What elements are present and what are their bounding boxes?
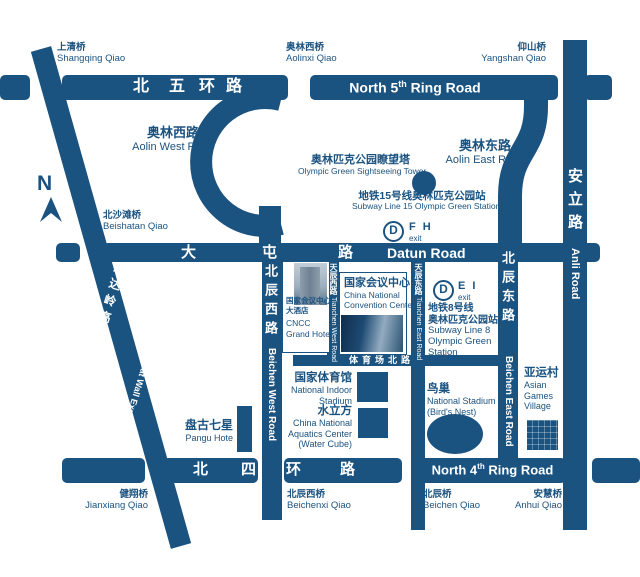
tiyuchang-road-label: 体育场北路	[349, 356, 414, 365]
datun-char-3: 路	[338, 245, 353, 260]
ring5-en-pre: North 5	[349, 80, 398, 96]
birds-nest-zh: 鸟巢	[427, 383, 496, 396]
tianchen-east-label-zh: 天辰东路	[414, 263, 422, 295]
asian-games-en1: Asian	[524, 380, 559, 390]
bridge-anhui: 安慧桥 Anhui Qiao	[498, 490, 562, 512]
ring4-char-2: 四	[241, 462, 256, 477]
asian-games-en2: Games	[524, 391, 559, 401]
anhui-en: Anhui Qiao	[498, 501, 562, 512]
line8-exit-text: exit	[458, 293, 477, 302]
cncc-photo	[341, 315, 403, 352]
ring4-char-4: 路	[340, 462, 355, 477]
beichen-east-label-zh: 北辰东路	[501, 251, 514, 327]
ring4-char-3: 环	[286, 462, 301, 477]
datun-char-2: 屯	[262, 245, 277, 260]
bridge-beichenxi: 北辰西桥 Beichenxi Qiao	[287, 490, 351, 512]
ring4-en-sup: th	[477, 462, 485, 471]
water-cube-marker	[358, 408, 388, 438]
anli-road-label-en: Anli Road	[569, 248, 580, 299]
line8-exit-label: E I exit	[458, 280, 477, 302]
line15-exit-text: exit	[409, 234, 433, 243]
ring5-char-3: 环	[199, 79, 215, 95]
line8-exit-code: E I	[458, 280, 477, 293]
aolinxi-en: Aolinxi Qiao	[286, 54, 337, 65]
cncc-hotel-en1: CNCC	[286, 319, 311, 329]
subway-logo-letter: D	[439, 282, 448, 296]
tower-zh: 奥林匹克公园瞭望塔	[298, 154, 423, 167]
aolin-east-en: Aolin East Road	[430, 154, 540, 167]
asian-games-zh: 亚运村	[524, 367, 559, 380]
indoor-stadium-label: 国家体育馆 National Indoor Stadium	[286, 372, 352, 406]
jianxiang-en: Jianxiang Qiao	[80, 501, 148, 512]
ring4-en-pre: North 4	[432, 462, 478, 477]
water-cube-zh: 水立方	[286, 405, 352, 418]
cncc-en2: Convention Center	[344, 301, 415, 311]
tianchen-east-label-en: Tianchen East Road	[415, 297, 422, 360]
birds-nest-en1: National Stadium	[427, 396, 496, 406]
beichen-en: Beichen Qiao	[423, 501, 480, 512]
cncc-hotel-zh2: 大酒店	[286, 307, 309, 316]
aolin-east-label: 奥林东路 Aolin East Road	[430, 139, 540, 167]
water-cube-en1: China National	[286, 418, 352, 428]
cncc-box: 国家会议中心 China National Convention Center	[339, 272, 407, 355]
datun-road-stub-left	[56, 243, 80, 262]
datun-road-label-en: Datun Road	[387, 246, 466, 260]
ring5-en-sup: th	[398, 79, 407, 89]
datun-char-1: 大	[181, 245, 196, 260]
birds-nest-marker	[427, 414, 483, 454]
aolin-west-connector-road	[259, 206, 281, 248]
ring5-char-2: 五	[169, 79, 185, 95]
indoor-stadium-marker	[357, 372, 388, 402]
ring4-road-stub-left	[62, 458, 145, 483]
ring4-road-label-en: North 4th Ring Road	[419, 463, 566, 476]
pangu-marker	[237, 406, 252, 452]
ring5-en-post: Ring Road	[407, 80, 481, 96]
line15-station-label: 地铁15号线奥林匹克公园站 Subway Line 15 Olympic Gre…	[352, 190, 492, 212]
line15-en: Subway Line 15 Olympic Green Station	[352, 202, 492, 212]
bridge-beichen: 北辰桥 Beichen Qiao	[423, 490, 480, 512]
ring4-en-post: Ring Road	[485, 462, 554, 477]
birds-nest-label: 鸟巢 National Stadium (Bird's Nest)	[427, 383, 496, 417]
cncc-hotel-en2: Grand Hotel	[286, 330, 332, 340]
cncc-zh: 国家会议中心	[344, 277, 410, 290]
bridge-aolinxi: 奥林西桥 Aolinxi Qiao	[286, 43, 337, 65]
bridge-yangshan: 仰山桥 Yangshan Qiao	[480, 43, 546, 65]
tower-en: Olympic Green Sightseeing Tower	[298, 167, 423, 177]
subway-logo-letter: D	[389, 223, 398, 237]
bridge-shangqing: 上清桥 Shangqing Qiao	[57, 43, 125, 65]
ring5-road-label-en: North 5th Ring Road	[310, 80, 520, 95]
beichen-west-label-en: Beichen West Road	[266, 348, 276, 441]
line8-zh-line: 地铁8号线	[428, 303, 498, 315]
north-arrow-icon	[40, 197, 62, 222]
anli-road-label-zh: 安立路	[567, 168, 582, 237]
tianchen-west-label-zh: 天辰西路	[329, 263, 337, 295]
ring5-char-1: 北	[133, 79, 149, 95]
water-cube-en3: (Water Cube)	[286, 439, 352, 449]
ring5-road-stub-left	[0, 75, 30, 100]
line15-exit-label: F H exit	[409, 221, 433, 243]
ring4-char-1: 北	[193, 462, 208, 477]
cncc-hotel-zh1: 国家会议中心	[286, 297, 331, 306]
ring5-char-4: 路	[226, 79, 242, 95]
beichen-west-label-zh: 北辰西路	[264, 264, 277, 340]
bridge-jianxiang: 健翔桥 Jianxiang Qiao	[80, 490, 148, 512]
shangqing-en: Shangqing Qiao	[57, 54, 125, 65]
yangshan-en: Yangshan Qiao	[480, 54, 546, 65]
pangu-en: Pangu Hote	[168, 433, 233, 443]
transit-map: 北 五 环 路 North 5th Ring Road 大 屯 路 Datun …	[0, 0, 640, 577]
beishatan-en: Beishatan Qiao	[103, 222, 168, 233]
tower-label: 奥林匹克公园瞭望塔 Olympic Green Sightseeing Towe…	[298, 154, 423, 176]
line8-en3: Station	[428, 348, 498, 359]
beichen-east-label-en: Beichen East Road	[503, 356, 513, 447]
asian-games-marker	[527, 420, 558, 450]
subway-logo-icon: D	[433, 280, 454, 301]
indoor-stadium-en1: National Indoor	[286, 385, 352, 395]
aolin-west-zh: 奥林西路	[113, 126, 233, 141]
beichenxi-en: Beichenxi Qiao	[287, 501, 351, 512]
aolin-west-label: 奥林西路 Aolin West Road	[113, 126, 233, 154]
line15-exit-code: F H	[409, 221, 433, 234]
water-cube-en2: Aquatics Center	[286, 429, 352, 439]
bridge-beishatan: 北沙滩桥 Beishatan Qiao	[103, 211, 168, 233]
asian-games-label: 亚运村 Asian Games Village	[524, 367, 559, 411]
pangu-label: 盘古七星 Pangu Hote	[168, 419, 233, 443]
subway-logo-icon: D	[383, 221, 404, 242]
ring5-road-stub-right	[584, 75, 612, 100]
aolin-east-zh: 奥林东路	[430, 139, 540, 154]
asian-games-en3: Village	[524, 401, 559, 411]
aolin-west-en: Aolin West Road	[113, 141, 233, 154]
cncc-hotel-box: 国家会议中心 大酒店 CNCC Grand Hotel	[282, 261, 330, 353]
line8-station-label: 地铁8号线 奥林匹克公园站 Subway Line 8 Olympic Gree…	[428, 303, 498, 359]
ring4-road-stub-right	[592, 458, 640, 483]
pangu-zh: 盘古七星	[168, 419, 233, 433]
compass-n-label: N	[37, 172, 52, 196]
water-cube-label: 水立方 China National Aquatics Center (Wate…	[286, 405, 352, 449]
indoor-stadium-zh: 国家体育馆	[286, 372, 352, 385]
